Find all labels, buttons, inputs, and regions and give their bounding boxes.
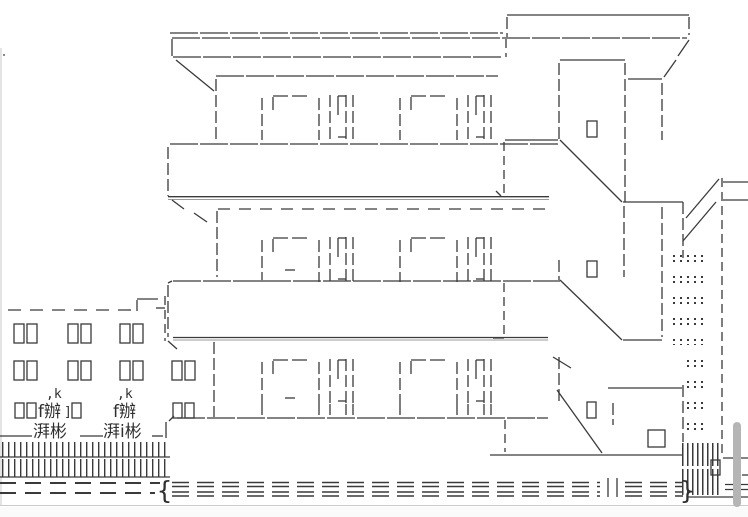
building-roof xyxy=(170,15,689,143)
lattice-dots-upper xyxy=(671,243,705,345)
balconies xyxy=(168,140,683,455)
road-open-brace: { xyxy=(157,476,172,505)
ascii-art-building: ,k ,k f辦 ] f辦 湃彬 湃i彬 { xyxy=(0,0,748,517)
bush-glyph-left: f辦 xyxy=(38,402,61,422)
shrub-glyph-left: 湃彬 xyxy=(33,422,67,442)
scrollbar-thumb[interactable] xyxy=(733,422,741,507)
road: { } xyxy=(0,476,695,505)
annex-windows-row1 xyxy=(14,324,143,343)
bush-glyph-right: f辦 xyxy=(113,402,136,422)
tree-glyph-right: ,k xyxy=(117,387,133,402)
tower-window-floor3 xyxy=(587,121,597,137)
utility-box xyxy=(648,430,665,447)
tree-glyph-left: ,k xyxy=(46,387,62,402)
road-close-brace: } xyxy=(680,476,695,505)
tower-window-floor2 xyxy=(587,261,597,277)
shrub-glyph-right: 湃i彬 xyxy=(103,422,142,442)
hedge-fence xyxy=(0,442,170,477)
staircase-tower xyxy=(557,40,689,453)
bush-bracket-glyph: ] xyxy=(64,405,72,420)
annex-windows-row2 xyxy=(14,361,195,380)
low-building: ,k ,k f辦 ] f辦 湃彬 湃i彬 xyxy=(0,296,195,442)
lattice-dots-lower xyxy=(687,352,703,438)
windows xyxy=(262,95,491,415)
tower-window-floor1 xyxy=(587,402,596,418)
page: ,k ,k f辦 ] f辦 湃彬 湃i彬 { xyxy=(0,0,748,517)
